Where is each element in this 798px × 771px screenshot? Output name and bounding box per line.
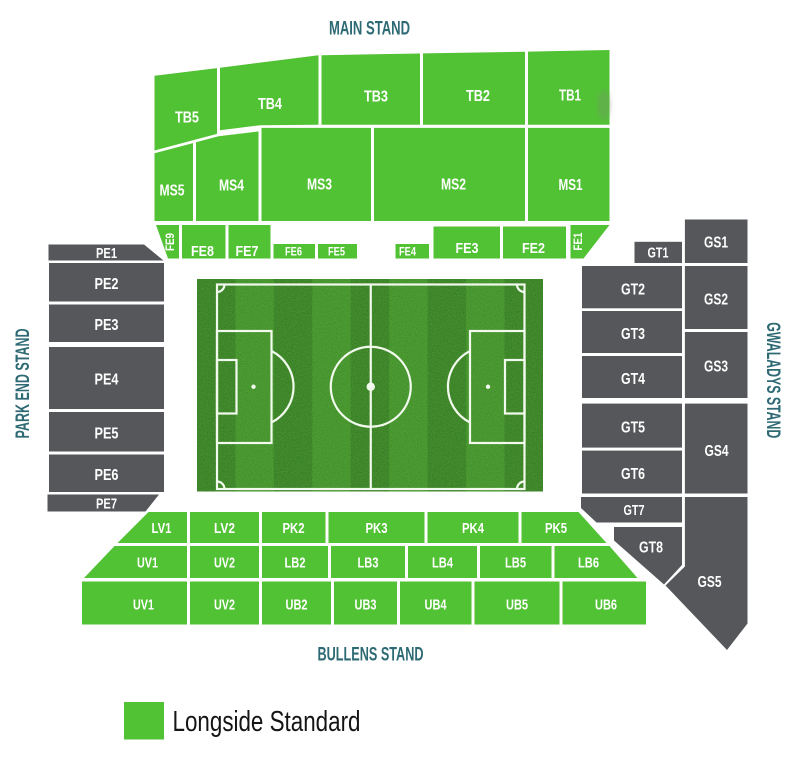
svg-text:LB4: LB4 [432, 554, 453, 571]
svg-text:PK4: PK4 [462, 520, 484, 537]
svg-text:GT7: GT7 [624, 503, 645, 519]
svg-text:GT6: GT6 [621, 466, 645, 483]
svg-text:TB4: TB4 [258, 96, 282, 113]
svg-text:FE7: FE7 [236, 243, 259, 260]
svg-text:PK5: PK5 [545, 520, 567, 537]
svg-text:PE2: PE2 [95, 276, 119, 293]
svg-text:GS4: GS4 [705, 443, 729, 460]
svg-text:MS1: MS1 [559, 177, 583, 194]
svg-text:MS4: MS4 [219, 177, 244, 194]
svg-text:FE5: FE5 [328, 247, 345, 259]
svg-text:TB2: TB2 [466, 88, 490, 105]
svg-text:GWALADYS STAND: GWALADYS STAND [762, 322, 783, 438]
svg-text:GT1: GT1 [648, 246, 669, 262]
svg-text:PE1: PE1 [96, 246, 117, 262]
svg-text:UB4: UB4 [425, 596, 447, 613]
svg-text:TB3: TB3 [364, 88, 388, 105]
svg-text:LB2: LB2 [285, 554, 306, 571]
svg-text:LB6: LB6 [578, 554, 599, 571]
svg-text:FE1: FE1 [571, 232, 585, 250]
svg-text:GS1: GS1 [704, 234, 728, 251]
svg-text:TB5: TB5 [175, 109, 199, 126]
svg-text:FE6: FE6 [285, 247, 302, 259]
svg-text:FE8: FE8 [191, 243, 214, 260]
svg-text:PE7: PE7 [96, 497, 117, 513]
svg-text:MAIN STAND: MAIN STAND [329, 18, 410, 39]
svg-text:PK2: PK2 [283, 520, 305, 537]
svg-text:BULLENS STAND: BULLENS STAND [318, 644, 424, 665]
svg-text:FE3: FE3 [456, 240, 479, 257]
svg-text:FE2: FE2 [522, 240, 545, 257]
svg-text:FE4: FE4 [399, 247, 416, 259]
svg-text:GT5: GT5 [621, 419, 645, 436]
svg-text:LV1: LV1 [152, 520, 172, 537]
svg-text:PE4: PE4 [95, 371, 119, 388]
svg-text:LB5: LB5 [505, 554, 526, 571]
svg-text:GS2: GS2 [704, 291, 728, 308]
svg-text:FE9: FE9 [163, 233, 177, 251]
svg-text:TB1: TB1 [559, 87, 581, 104]
svg-text:GT2: GT2 [621, 281, 645, 298]
svg-text:MS2: MS2 [441, 176, 466, 193]
svg-text:GT4: GT4 [621, 371, 645, 388]
svg-text:PE5: PE5 [95, 425, 119, 442]
svg-text:MS3: MS3 [307, 176, 332, 193]
svg-text:MS5: MS5 [160, 182, 185, 199]
svg-text:LV2: LV2 [214, 520, 235, 537]
svg-text:Longside Standard: Longside Standard [173, 706, 361, 738]
svg-text:GT8: GT8 [639, 539, 663, 556]
svg-text:UV1: UV1 [137, 554, 158, 571]
svg-text:UB2: UB2 [286, 596, 308, 613]
svg-text:GT3: GT3 [621, 326, 645, 343]
svg-text:GS3: GS3 [704, 358, 728, 375]
svg-text:PK3: PK3 [366, 520, 388, 537]
svg-text:UV2: UV2 [214, 554, 235, 571]
svg-text:UB6: UB6 [595, 596, 617, 613]
svg-text:UB3: UB3 [355, 596, 377, 613]
svg-text:PE3: PE3 [95, 317, 119, 334]
svg-text:UV2: UV2 [214, 596, 235, 613]
svg-text:PE6: PE6 [95, 467, 119, 484]
svg-text:LB3: LB3 [358, 554, 379, 571]
svg-text:UV1: UV1 [133, 596, 154, 613]
svg-text:UB5: UB5 [506, 596, 528, 613]
svg-text:PARK END STAND: PARK END STAND [13, 329, 34, 439]
svg-text:GS5: GS5 [698, 574, 722, 591]
